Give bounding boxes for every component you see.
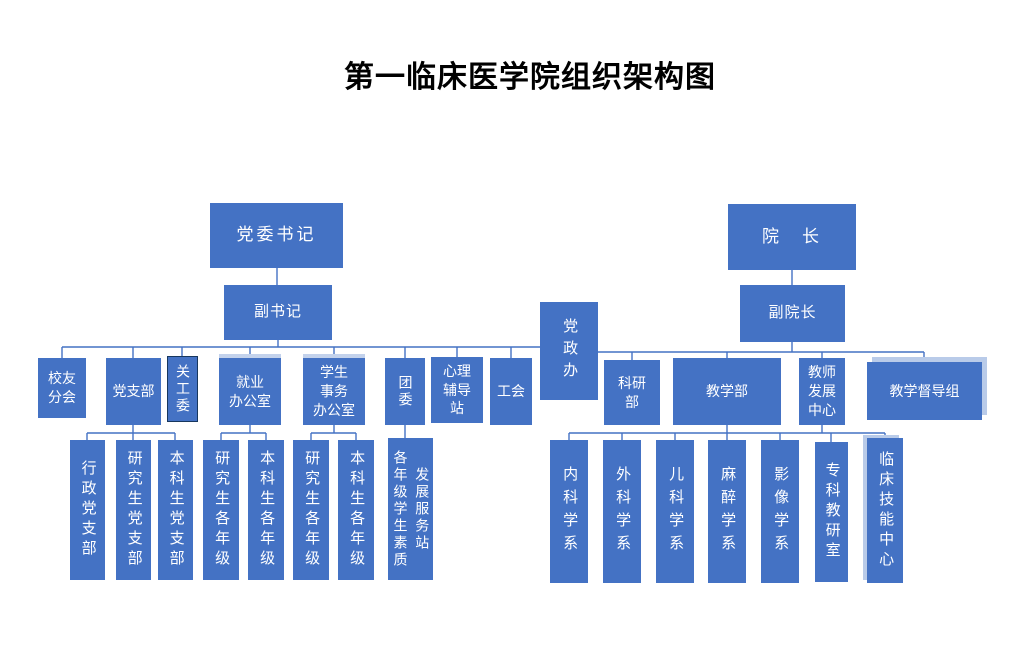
node-dean: 院 长 <box>728 204 856 270</box>
node-party-secretary: 党委书记 <box>210 203 343 268</box>
node-student-affairs-office: 学生 事务 办公室 <box>303 358 365 425</box>
node-employment-office: 就业 办公室 <box>219 358 281 425</box>
node-quality-service-station: 各年级学生素质 发展服务站 <box>388 438 433 580</box>
node-alumni-branch: 校友 分会 <box>38 358 86 418</box>
node-clinical-skills-center: 临床技能中心 <box>867 438 903 583</box>
node-party-admin-office: 党政办 <box>540 302 598 400</box>
node-supervision-group: 教学督导组 <box>867 362 982 420</box>
node-care-committee: 关工委 <box>167 356 198 422</box>
node-labor-union: 工会 <box>490 358 532 425</box>
node-teaching-dept: 教学部 <box>673 358 781 425</box>
node-affairs-grad: 研究生各年级 <box>293 440 329 580</box>
node-surgery: 外科学系 <box>603 440 641 583</box>
node-anesthesiology: 麻醉学系 <box>708 440 746 583</box>
node-counseling-station: 心理 辅导 站 <box>431 357 483 423</box>
node-pediatrics: 儿科学系 <box>656 440 694 583</box>
node-admin-party-branch: 行政党支部 <box>70 440 105 580</box>
node-grad-party-branch: 研究生党支部 <box>116 440 151 580</box>
node-teacher-dev-center: 教师 发展 中心 <box>799 358 845 425</box>
node-vice-dean: 副院长 <box>740 285 845 342</box>
org-chart: 第一临床医学院组织架构图 <box>0 0 1024 661</box>
node-party-branch: 党支部 <box>106 358 161 425</box>
node-deputy-secretary: 副书记 <box>224 285 332 340</box>
node-research-dept: 科研 部 <box>604 360 660 425</box>
node-youth-league: 团委 <box>385 358 425 425</box>
node-affairs-undergrad: 本科生各年级 <box>338 440 374 580</box>
node-undergrad-party-branch: 本科生党支部 <box>158 440 193 580</box>
node-specialty-teaching-office: 专科教研室 <box>815 442 848 582</box>
node-internal-medicine: 内科学系 <box>550 440 588 583</box>
node-imaging: 影像学系 <box>761 440 799 583</box>
node-employment-undergrad: 本科生各年级 <box>248 440 284 580</box>
node-employment-grad: 研究生各年级 <box>203 440 239 580</box>
